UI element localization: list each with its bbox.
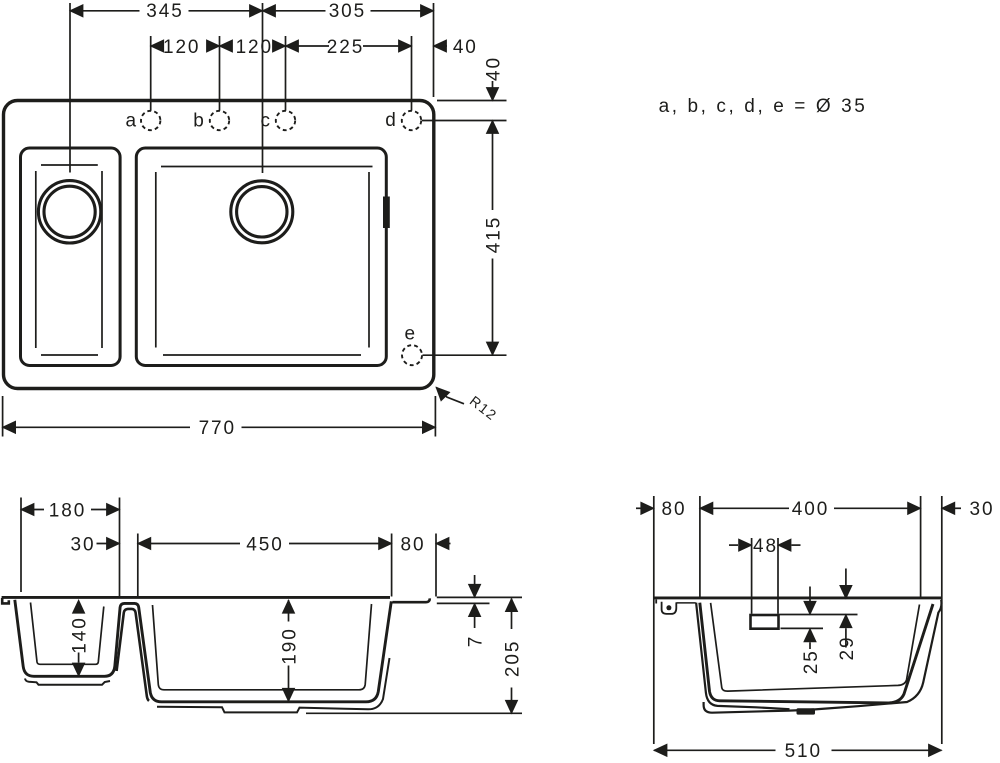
svg-text:225: 225 — [327, 37, 364, 58]
svg-text:80: 80 — [662, 499, 687, 520]
svg-text:40: 40 — [453, 37, 478, 58]
svg-text:450: 450 — [246, 534, 283, 555]
svg-text:7: 7 — [466, 635, 487, 647]
svg-text:400: 400 — [792, 499, 829, 520]
svg-text:a, b, c, d, e = Ø 35: a, b, c, d, e = Ø 35 — [659, 96, 868, 117]
svg-text:d: d — [385, 110, 396, 131]
svg-text:R12: R12 — [467, 392, 501, 423]
svg-text:120: 120 — [236, 37, 273, 58]
svg-text:120: 120 — [163, 37, 200, 58]
svg-text:80: 80 — [401, 534, 426, 555]
svg-text:305: 305 — [329, 1, 366, 22]
svg-text:29: 29 — [837, 636, 858, 661]
svg-text:140: 140 — [70, 616, 91, 653]
svg-text:205: 205 — [502, 640, 523, 677]
svg-text:30: 30 — [71, 534, 96, 555]
svg-text:e: e — [405, 323, 416, 344]
svg-text:b: b — [193, 110, 204, 131]
svg-text:30: 30 — [970, 499, 995, 520]
svg-text:40: 40 — [484, 56, 505, 81]
svg-text:190: 190 — [279, 627, 300, 664]
svg-text:a: a — [126, 110, 137, 131]
svg-text:180: 180 — [49, 500, 86, 521]
svg-text:c: c — [261, 110, 271, 131]
svg-text:510: 510 — [785, 741, 822, 762]
svg-text:415: 415 — [484, 216, 505, 253]
svg-text:770: 770 — [199, 418, 236, 439]
svg-text:48: 48 — [753, 536, 778, 557]
svg-text:25: 25 — [801, 649, 822, 674]
svg-text:345: 345 — [146, 1, 183, 22]
